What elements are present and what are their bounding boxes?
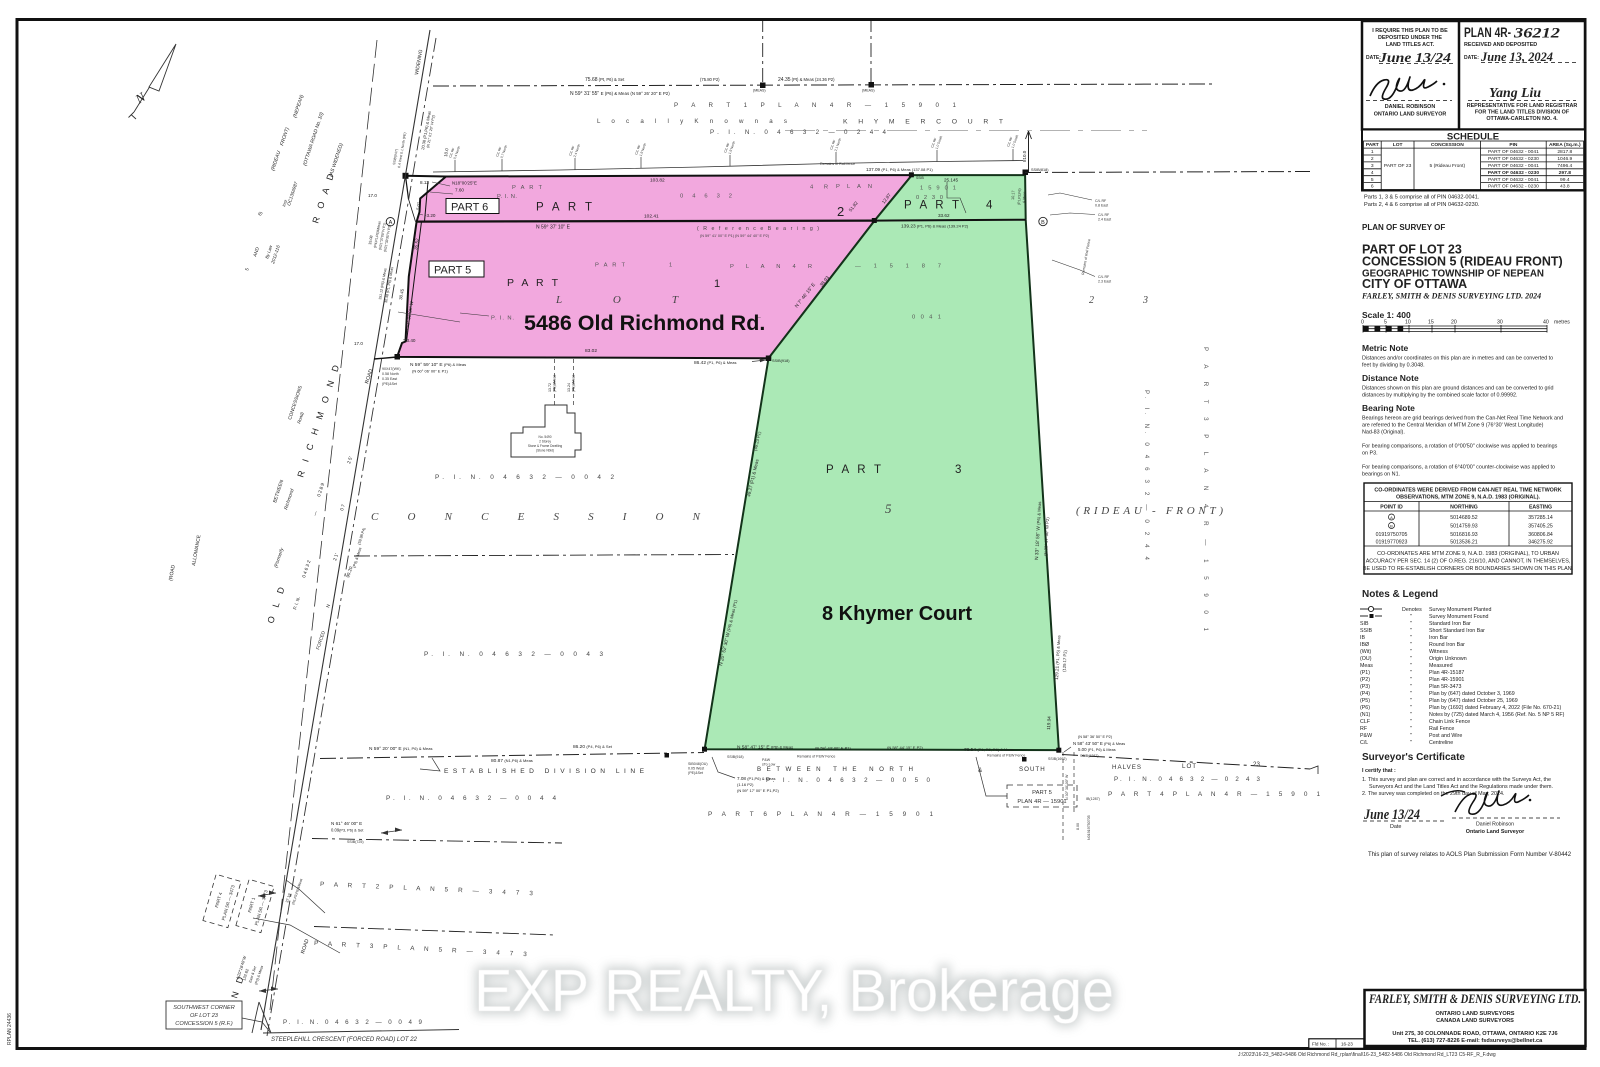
svg-text:LAND TITLES ACT.: LAND TITLES ACT. xyxy=(1386,42,1435,48)
svg-text:": " xyxy=(1410,691,1412,697)
svg-text:FOR THE LAND TITLES DIVISION O: FOR THE LAND TITLES DIVISION OF xyxy=(1475,110,1570,116)
svg-text:SSIB(818): SSIB(818) xyxy=(1031,168,1049,172)
svg-text:PLAN OF SURVEY OF: PLAN OF SURVEY OF xyxy=(1362,223,1445,232)
svg-text:5: 5 xyxy=(885,501,892,516)
svg-text:SOUTH: SOUTH xyxy=(1019,766,1046,773)
svg-text:7.08 (P1,P6) & Meas: 7.08 (P1,P6) & Meas xyxy=(737,776,775,781)
svg-text:Unit 275, 30 COLONNADE ROAD,: Unit 275, 30 COLONNADE ROAD, OTTAWA, ONT… xyxy=(1392,1031,1557,1037)
svg-text:3: 3 xyxy=(1142,295,1148,306)
svg-text:": " xyxy=(1410,621,1412,627)
svg-text:PART OF 23: PART OF 23 xyxy=(1384,163,1412,169)
svg-text:Short Standard Iron Bar: Short Standard Iron Bar xyxy=(1429,628,1485,634)
svg-text:0.09(P3, P6) & Set: 0.09(P3, P6) & Set xyxy=(331,828,364,833)
svg-text:Fld No. :: Fld No. : xyxy=(1312,1042,1329,1047)
svg-text:(P3): (P3) xyxy=(1360,684,1370,690)
svg-text:PART 5: PART 5 xyxy=(1032,790,1052,796)
svg-text:(N1): (N1) xyxy=(1360,712,1371,718)
svg-text:RF: RF xyxy=(1360,726,1368,732)
svg-text:357405.25: 357405.25 xyxy=(1528,524,1553,530)
svg-text:(PE)&Set: (PE)&Set xyxy=(688,771,703,775)
svg-text:CONCESSION 5 (RIDEAU FRONT): CONCESSION 5 (RIDEAU FRONT) xyxy=(1362,255,1563,269)
svg-text:Plan 5R-3473: Plan 5R-3473 xyxy=(1429,684,1461,690)
svg-text:(P1): (P1) xyxy=(1360,670,1370,676)
svg-text:2: 2 xyxy=(1371,156,1374,162)
svg-text:distances by multiplying by th: distances by multiplying by the combined… xyxy=(1362,393,1518,399)
svg-text:Witness: Witness xyxy=(1429,649,1448,655)
svg-text:Notes by (725) dated March 4,: Notes by (725) dated March 4, 1956 (Ref.… xyxy=(1429,712,1565,718)
svg-text:5486 Old Richmond Rd.: 5486 Old Richmond Rd. xyxy=(524,311,765,335)
svg-text:8 Khymer Court: 8 Khymer Court xyxy=(822,603,972,625)
svg-text:Daniel Robinson: Daniel Robinson xyxy=(1476,822,1514,828)
svg-text:PIN: PIN xyxy=(1509,142,1518,148)
svg-text:Survey Monument Planted: Survey Monument Planted xyxy=(1429,607,1491,613)
svg-text:0.05 West: 0.05 West xyxy=(688,767,704,771)
svg-text:4 R: 4 R xyxy=(810,185,828,191)
svg-text:EXP REALTY, Brokerage: EXP REALTY, Brokerage xyxy=(474,958,1114,1024)
svg-text:10.17: 10.17 xyxy=(1011,190,1015,200)
svg-text:": " xyxy=(1410,649,1412,655)
svg-text:0: 0 xyxy=(1361,320,1364,326)
svg-text:Plan by (1692) dated February: Plan by (1692) dated February 4, 2022 (F… xyxy=(1429,705,1561,711)
svg-text:I certify that :: I certify that : xyxy=(1362,768,1396,774)
svg-text:-3.40: -3.40 xyxy=(405,338,416,343)
svg-text:102.41: 102.41 xyxy=(644,214,659,220)
svg-text:N18°00'25"E: N18°00'25"E xyxy=(452,181,477,186)
svg-text:(P5): (P5) xyxy=(1360,698,1370,704)
svg-text:15: 15 xyxy=(1428,320,1434,326)
svg-text:": " xyxy=(1410,656,1412,662)
svg-text:2.3 East: 2.3 East xyxy=(1098,280,1111,284)
svg-text:CANADA LAND SURVEYORS: CANADA LAND SURVEYORS xyxy=(1436,1018,1514,1024)
svg-text:4: 4 xyxy=(986,200,993,212)
svg-text:(P6): (P6) xyxy=(1360,705,1370,711)
svg-text:Origin Unknown: Origin Unknown xyxy=(1429,656,1467,662)
svg-text:HALVES: HALVES xyxy=(1112,764,1142,771)
svg-text:REPRESENTATIVE FOR LAND REGIST: REPRESENTATIVE FOR LAND REGISTRAR xyxy=(1467,103,1578,109)
svg-text:N 58° 43' 50" E (P6) & Meas: N 58° 43' 50" E (P6) & Meas xyxy=(1073,741,1125,746)
svg-text:June 13, 2024: June 13, 2024 xyxy=(1480,49,1553,64)
svg-text:Plan by (647) dated October 25: Plan by (647) dated October 25, 1969 xyxy=(1429,698,1518,704)
svg-text:5.00 (P1, P6) & Meas: 5.00 (P1, P6) & Meas xyxy=(1078,747,1116,752)
svg-text:99.4: 99.4 xyxy=(1560,177,1570,183)
svg-text:Centreline: Centreline xyxy=(1429,740,1453,746)
svg-text:2.4 East: 2.4 East xyxy=(1098,218,1111,222)
svg-text:357285.14: 357285.14 xyxy=(1528,515,1553,521)
svg-text:OBSERVATIONS, MTM ZONE 9, N.A.: OBSERVATIONS, MTM ZONE 9, N.A.D. 1983 (O… xyxy=(1396,495,1541,501)
svg-text:CLF: CLF xyxy=(1360,719,1371,725)
svg-text:Remains of P&W Fence: Remains of P&W Fence xyxy=(987,754,1025,758)
svg-text:Plan by (647) dated October 3,: Plan by (647) dated October 3, 1969 xyxy=(1429,691,1515,697)
svg-text:": " xyxy=(1410,635,1412,641)
svg-text:-3.20: -3.20 xyxy=(425,213,436,218)
svg-text:": " xyxy=(1410,719,1412,725)
svg-text:NORTHING: NORTHING xyxy=(1450,505,1478,511)
svg-text:17.0: 17.0 xyxy=(368,193,377,198)
svg-text:Distances shown on this plan a: Distances shown on this plan are ground … xyxy=(1362,386,1554,392)
svg-text:C/L: C/L xyxy=(1360,740,1368,746)
svg-text:OF LOT 23: OF LOT 23 xyxy=(190,1013,219,1019)
svg-text:40: 40 xyxy=(1543,320,1549,326)
svg-text:43.8: 43.8 xyxy=(1560,184,1570,190)
svg-text:(N 59° 17' 00" E P1,P2): (N 59° 17' 00" E P1,P2) xyxy=(737,788,779,793)
svg-text:A: A xyxy=(1390,515,1393,520)
svg-text:I REQUIRE THIS PLAN TO BE: I REQUIRE THIS PLAN TO BE xyxy=(1372,28,1448,34)
svg-text:(N 59° 43' 00" E P1): (N 59° 43' 00" E P1) xyxy=(815,746,851,751)
svg-text:3: 3 xyxy=(955,464,961,476)
svg-text:B: B xyxy=(1390,524,1393,529)
svg-text:ONTARIO LAND SURVEYORS: ONTARIO LAND SURVEYORS xyxy=(1435,1011,1514,1017)
svg-text:Bearing Note: Bearing Note xyxy=(1362,403,1415,413)
svg-text:": " xyxy=(1410,663,1412,669)
svg-text:DEPOSITED UNDER THE: DEPOSITED UNDER THE xyxy=(1378,35,1442,41)
svg-text:SSIB: SSIB xyxy=(916,176,924,180)
svg-text:PART OF 04632 - 0230: PART OF 04632 - 0230 xyxy=(1488,156,1539,162)
svg-text:7496.4: 7496.4 xyxy=(1557,163,1572,169)
svg-text:PART OF 04632 - 0041: PART OF 04632 - 0041 xyxy=(1488,163,1539,169)
svg-text:N 30° 38' 00" W: N 30° 38' 00" W xyxy=(1065,774,1069,800)
svg-text:This plan of survey relates to: This plan of survey relates to AOLS Plan… xyxy=(1368,852,1572,858)
svg-text:C/L RF: C/L RF xyxy=(1095,199,1107,203)
svg-text:C/L RF: C/L RF xyxy=(1098,213,1110,217)
svg-text:(OU): (OU) xyxy=(1360,656,1372,662)
svg-text:For bearing comparisons, a rot: For bearing comparisons, a rotation of 0… xyxy=(1362,444,1558,450)
svg-text:Surveyors Act and the Land Tit: Surveyors Act and the Land Titles Act an… xyxy=(1369,784,1553,790)
svg-text:": " xyxy=(1410,740,1412,746)
svg-text:EASTING: EASTING xyxy=(1529,505,1552,511)
svg-text:119.04: 119.04 xyxy=(1046,716,1052,730)
svg-text:Ontario Land Surveyor: Ontario Land Surveyor xyxy=(1466,829,1525,835)
svg-text:FARLEY, SMITH & DENIS SURVEYIN: FARLEY, SMITH & DENIS SURVEYING LTD. xyxy=(1368,992,1581,1006)
svg-text:P&W: P&W xyxy=(762,758,771,762)
svg-text:": " xyxy=(1410,642,1412,648)
svg-text:TEL. (613) 727-8226 E-mail: TEL. (613) 727-8226 E-mail: fsdsurveys@b… xyxy=(1408,1038,1543,1044)
svg-text:PLAN 4R-: PLAN 4R- xyxy=(1464,25,1511,40)
svg-text:(Wit): (Wit) xyxy=(1360,649,1371,655)
svg-text:STEEPLEHILL CRESCENT (FORCED: STEEPLEHILL CRESCENT (FORCED ROAD) LOT 2… xyxy=(271,1037,418,1043)
svg-text:5016816.93: 5016816.93 xyxy=(1450,532,1478,538)
svg-text:01919770923: 01919770923 xyxy=(1376,540,1408,546)
svg-text:CO-ORDINATES WERE DERIVED FROM: CO-ORDINATES WERE DERIVED FROM CAN-NET R… xyxy=(1374,488,1561,494)
svg-text:8.13: 8.13 xyxy=(420,180,429,185)
svg-text:33.62: 33.62 xyxy=(938,213,950,218)
svg-text:": " xyxy=(1410,726,1412,732)
svg-text:": " xyxy=(1410,698,1412,704)
svg-text:360806.84: 360806.84 xyxy=(1528,532,1553,538)
svg-text:IBØ: IBØ xyxy=(1360,642,1369,648)
svg-text:For bearing comparisons, a rot: For bearing comparisons, a rotation of 6… xyxy=(1362,465,1555,471)
svg-text:Standard Iron Bar: Standard Iron Bar xyxy=(1429,621,1471,627)
svg-text:23: 23 xyxy=(1253,761,1260,768)
svg-text:OTTAWA-CARLETON NO. 4.: OTTAWA-CARLETON NO. 4. xyxy=(1486,116,1558,122)
svg-text:0.8 East: 0.8 East xyxy=(1095,204,1108,208)
svg-text:5014689.52: 5014689.52 xyxy=(1450,515,1478,521)
svg-text:PART OF 04632 - 0041: PART OF 04632 - 0041 xyxy=(1488,149,1539,155)
svg-text:1 5 9 0 1: 1 5 9 0 1 xyxy=(920,186,956,192)
svg-text:B: B xyxy=(1041,220,1045,226)
svg-text:2 Storey: 2 Storey xyxy=(539,440,551,444)
svg-text:PART 5: PART 5 xyxy=(434,265,471,277)
svg-text:Distance Note: Distance Note xyxy=(1362,373,1419,383)
svg-text:POINT ID: POINT ID xyxy=(1380,505,1403,511)
svg-text:Denotes: Denotes xyxy=(1402,607,1422,613)
svg-text:2. The survey was completed: 2. The survey was completed on the 29th … xyxy=(1362,791,1504,797)
svg-text:LOT: LOT xyxy=(1393,142,1403,148)
svg-text:3: 3 xyxy=(1371,163,1374,169)
svg-text:SOUTHWEST CORNER: SOUTHWEST CORNER xyxy=(173,1005,235,1011)
svg-text:297.8: 297.8 xyxy=(1559,170,1572,176)
svg-text:P. I. N.: P. I. N. xyxy=(491,316,514,322)
svg-text:DANIEL ROBINSON: DANIEL ROBINSON xyxy=(1385,104,1436,110)
svg-text:SSIB(1692): SSIB(1692) xyxy=(1048,757,1067,761)
svg-text:": " xyxy=(1410,684,1412,690)
svg-text:(P4): (P4) xyxy=(1360,691,1370,697)
svg-text:( R e f e r e n c e B e a: ( R e f e r e n c e B e a r i n g ) xyxy=(697,226,819,232)
svg-text:Iron Bar: Iron Bar xyxy=(1429,635,1448,641)
svg-text:(Stone Nbld): (Stone Nbld) xyxy=(536,449,554,453)
svg-text:P&W: P&W xyxy=(1360,733,1372,739)
svg-text:PART OF 04632 - 0230: PART OF 04632 - 0230 xyxy=(1488,184,1539,190)
svg-text:90X47(WK): 90X47(WK) xyxy=(382,367,401,371)
svg-text:PLAN 4R — 15901: PLAN 4R — 15901 xyxy=(1017,799,1066,805)
svg-text:30: 30 xyxy=(1497,320,1503,326)
svg-text:ONTARIO LAND SURVEYOR: ONTARIO LAND SURVEYOR xyxy=(1374,112,1447,118)
svg-text:(MEAS): (MEAS) xyxy=(753,89,766,93)
svg-text:(N 58° 36' 50" E P2): (N 58° 36' 50" E P2) xyxy=(1078,735,1113,739)
svg-text:feet by dividing by 0.3048.: feet by dividing by 0.3048. xyxy=(1362,363,1425,369)
svg-text:(N 60° 06' 00" E P1): (N 60° 06' 00" E P1) xyxy=(412,369,448,374)
svg-text:Plan 4R-15901: Plan 4R-15901 xyxy=(1429,677,1464,683)
svg-text:Surveyor's Certificate: Surveyor's Certificate xyxy=(1362,752,1465,763)
svg-text:36212: 36212 xyxy=(1513,26,1561,42)
svg-text:346275.92: 346275.92 xyxy=(1528,540,1553,546)
svg-text:SIB: SIB xyxy=(1360,621,1369,627)
svg-text:1. This survey and plan are: 1. This survey and plan are correct and … xyxy=(1362,777,1551,783)
svg-text:J:\2023\16-23_5482+5486 Old Ri: J:\2023\16-23_5482+5486 Old Richmond Rd_… xyxy=(1238,1052,1496,1058)
svg-text:Remains of P&W Fence: Remains of P&W Fence xyxy=(797,755,835,759)
svg-text:1: 1 xyxy=(669,263,672,269)
svg-text:Scale 1: 400: Scale 1: 400 xyxy=(1362,310,1411,320)
svg-text:137.09 (P1, P6) & Meas (137.: 137.09 (P1, P6) & Meas (137.08 P1) xyxy=(866,167,933,172)
svg-text:": " xyxy=(1410,705,1412,711)
svg-text:(P2): (P2) xyxy=(1360,677,1370,683)
svg-text:1: 1 xyxy=(1371,149,1374,155)
svg-text:13.72: 13.72 xyxy=(548,383,552,392)
svg-text:5014759.93: 5014759.93 xyxy=(1450,524,1478,530)
svg-text:PART: PART xyxy=(1366,142,1379,148)
svg-text:PART 6: PART 6 xyxy=(451,202,488,214)
svg-text:10: 10 xyxy=(1405,320,1411,326)
svg-text:Round Iron Bar: Round Iron Bar xyxy=(1429,642,1465,648)
svg-text:5013536.21: 5013536.21 xyxy=(1450,540,1478,546)
svg-text:IB(1287): IB(1287) xyxy=(1086,797,1100,801)
svg-text:P. I. N.: P. I. N. xyxy=(497,194,517,200)
svg-text:bearings on N1.: bearings on N1. xyxy=(1362,472,1400,478)
svg-text:(PE)&Meas: (PE)&Meas xyxy=(572,374,576,392)
svg-text:0.58 North: 0.58 North xyxy=(382,372,399,376)
svg-text:": " xyxy=(1410,670,1412,676)
svg-text:SSIB(918): SSIB(918) xyxy=(772,359,790,363)
svg-text:SSIB(1287): SSIB(1287) xyxy=(1080,754,1099,758)
svg-text:Plan 4R-15187: Plan 4R-15187 xyxy=(1429,670,1464,676)
svg-text:IB: IB xyxy=(1360,635,1365,641)
svg-text:6: 6 xyxy=(1371,184,1374,190)
svg-text:8.00: 8.00 xyxy=(1076,823,1080,830)
svg-text:0 4 6 3 2: 0 4 6 3 2 xyxy=(680,194,732,200)
svg-text:P A R T: P A R T xyxy=(595,263,625,269)
svg-text:20: 20 xyxy=(1451,320,1457,326)
svg-text:01919750705: 01919750705 xyxy=(1376,532,1408,538)
svg-text:Stone & Frame Dwelling: Stone & Frame Dwelling xyxy=(528,444,563,448)
svg-text:(N 58° 44' 15" E P2): (N 58° 44' 15" E P2) xyxy=(887,745,923,750)
svg-text:BE USED TO RE-ESTABLISH CORNER: BE USED TO RE-ESTABLISH CORNERS OR BOUND… xyxy=(1363,566,1573,572)
svg-text:CONCESSION: CONCESSION xyxy=(1431,142,1464,148)
svg-text:SSIB: SSIB xyxy=(1360,628,1373,634)
svg-text:Rail Fence: Rail Fence xyxy=(1429,726,1454,732)
svg-text:SSIB(918): SSIB(918) xyxy=(727,755,744,759)
svg-text:(PE)&Set: (PE)&Set xyxy=(382,382,397,386)
svg-text:Distances and/or coordinates o: Distances and/or coordinates on this pla… xyxy=(1362,356,1553,362)
svg-text:": " xyxy=(1410,614,1412,620)
svg-text:16-23: 16-23 xyxy=(1341,1042,1353,1047)
svg-text:2817.8: 2817.8 xyxy=(1557,149,1572,155)
svg-text:Metric Note: Metric Note xyxy=(1362,343,1409,353)
svg-text:Post and Wire: Post and Wire xyxy=(1429,733,1462,739)
svg-text:CO-ORDINATES ARE MTM ZONE 9, N: CO-ORDINATES ARE MTM ZONE 9, N.A.D. 1983… xyxy=(1377,551,1559,557)
svg-text:83.02: 83.02 xyxy=(585,348,597,354)
svg-text:CITY OF OTTAWA: CITY OF OTTAWA xyxy=(1362,277,1467,291)
svg-text:Parts 2, 4 & 6 comprise all of: Parts 2, 4 & 6 comprise all of PIN 04632… xyxy=(1364,202,1480,208)
svg-text:Survey Monument Found: Survey Monument Found xyxy=(1429,614,1489,620)
svg-text:Remains of Rail fence: Remains of Rail fence xyxy=(820,162,855,166)
svg-text:RECEIVED AND DEPOSITED: RECEIVED AND DEPOSITED xyxy=(1464,42,1537,48)
svg-text:1: 1 xyxy=(714,278,720,290)
svg-text:5: 5 xyxy=(1384,320,1387,326)
svg-text:0.35 East: 0.35 East xyxy=(382,377,397,381)
svg-text:PART OF 04632 - 0230: PART OF 04632 - 0230 xyxy=(1488,170,1540,176)
svg-text:DATE:: DATE: xyxy=(1464,55,1479,61)
svg-text:5 (Rideau Front): 5 (Rideau Front) xyxy=(1429,163,1465,169)
svg-text:Nad-83 (Original).: Nad-83 (Original). xyxy=(1362,430,1405,436)
svg-text:13.24: 13.24 xyxy=(567,383,571,392)
svg-text:Meas: Meas xyxy=(1360,663,1373,669)
svg-text:N 59° 37' 10" E: N 59° 37' 10" E xyxy=(536,225,571,231)
svg-text:1046.9: 1046.9 xyxy=(1557,156,1572,162)
svg-text:2: 2 xyxy=(837,204,844,219)
svg-text:Date: Date xyxy=(1390,824,1401,830)
svg-text:CONCESSION 5 (R.F.): CONCESSION 5 (R.F.) xyxy=(175,1021,233,1027)
svg-text:103.82: 103.82 xyxy=(650,178,665,184)
svg-text:PART OF 04632 - 0041: PART OF 04632 - 0041 xyxy=(1488,177,1539,183)
svg-text:4: 4 xyxy=(1371,170,1374,176)
svg-text:SIB048(OU): SIB048(OU) xyxy=(688,762,708,766)
svg-text:RPLAN 24436: RPLAN 24436 xyxy=(7,1013,13,1045)
svg-text:LOT: LOT xyxy=(1182,763,1197,770)
svg-text:(75.80 P2): (75.80 P2) xyxy=(700,77,720,82)
svg-text:C/L RF: C/L RF xyxy=(1098,275,1110,279)
svg-text:25.145: 25.145 xyxy=(944,178,958,183)
svg-text:SSIB(725): SSIB(725) xyxy=(347,840,364,844)
svg-text:No. 5490: No. 5490 xyxy=(539,435,552,439)
svg-text:metres: metres xyxy=(1554,320,1570,326)
svg-text:on P3.: on P3. xyxy=(1362,451,1378,457)
svg-text:": " xyxy=(1410,733,1412,739)
svg-text:(N 59° 41' 00" E P1) (N 5: (N 59° 41' 00" E P1) (N 59° 44' 40" E P2… xyxy=(700,234,770,238)
svg-text:(PE)&Meas: (PE)&Meas xyxy=(553,374,557,392)
svg-text:17.0: 17.0 xyxy=(354,341,363,346)
svg-text:Chain Link Fence: Chain Link Fence xyxy=(1429,719,1470,725)
svg-text:& Meas: & Meas xyxy=(1022,191,1027,203)
svg-text:": " xyxy=(1410,677,1412,683)
svg-text:P A R T: P A R T xyxy=(512,185,542,191)
svg-text:": " xyxy=(1410,712,1412,718)
svg-text:7.60: 7.60 xyxy=(455,188,464,193)
svg-text:are referred to the Central Me: are referred to the Central Meridian of … xyxy=(1362,423,1544,429)
svg-text:Measured: Measured xyxy=(1429,663,1453,669)
svg-text:FARLEY, SMITH & DENIS SURVEYIN: FARLEY, SMITH & DENIS SURVEYING LTD. 202… xyxy=(1361,292,1541,301)
svg-text:": " xyxy=(1410,628,1412,634)
svg-text:N01919750705: N01919750705 xyxy=(1087,815,1091,840)
svg-text:ACCURACY PER SEC. 14 (2) OF O.: ACCURACY PER SEC. 14 (2) OF O.REG. 216/1… xyxy=(1366,559,1571,565)
svg-text:AREA (Sq.m.): AREA (Sq.m.) xyxy=(1549,142,1581,148)
svg-text:N 61° 46' 00" E: N 61° 46' 00" E xyxy=(331,821,362,826)
svg-text:Yang Liu: Yang Liu xyxy=(1489,86,1541,101)
svg-text:(1.16 P2): (1.16 P2) xyxy=(737,782,754,787)
svg-text:(MEAS): (MEAS) xyxy=(862,89,875,93)
svg-text:2: 2 xyxy=(1089,295,1094,306)
svg-text:5: 5 xyxy=(1371,177,1374,183)
svg-text:Parts 1, 3 & 5 comprise all of: Parts 1, 3 & 5 comprise all of PIN 04632… xyxy=(1364,195,1480,201)
svg-text:Notes & Legend: Notes & Legend xyxy=(1362,589,1438,600)
svg-text:Bearings hereon are grid beari: Bearings hereon are grid bearings derive… xyxy=(1362,416,1563,422)
